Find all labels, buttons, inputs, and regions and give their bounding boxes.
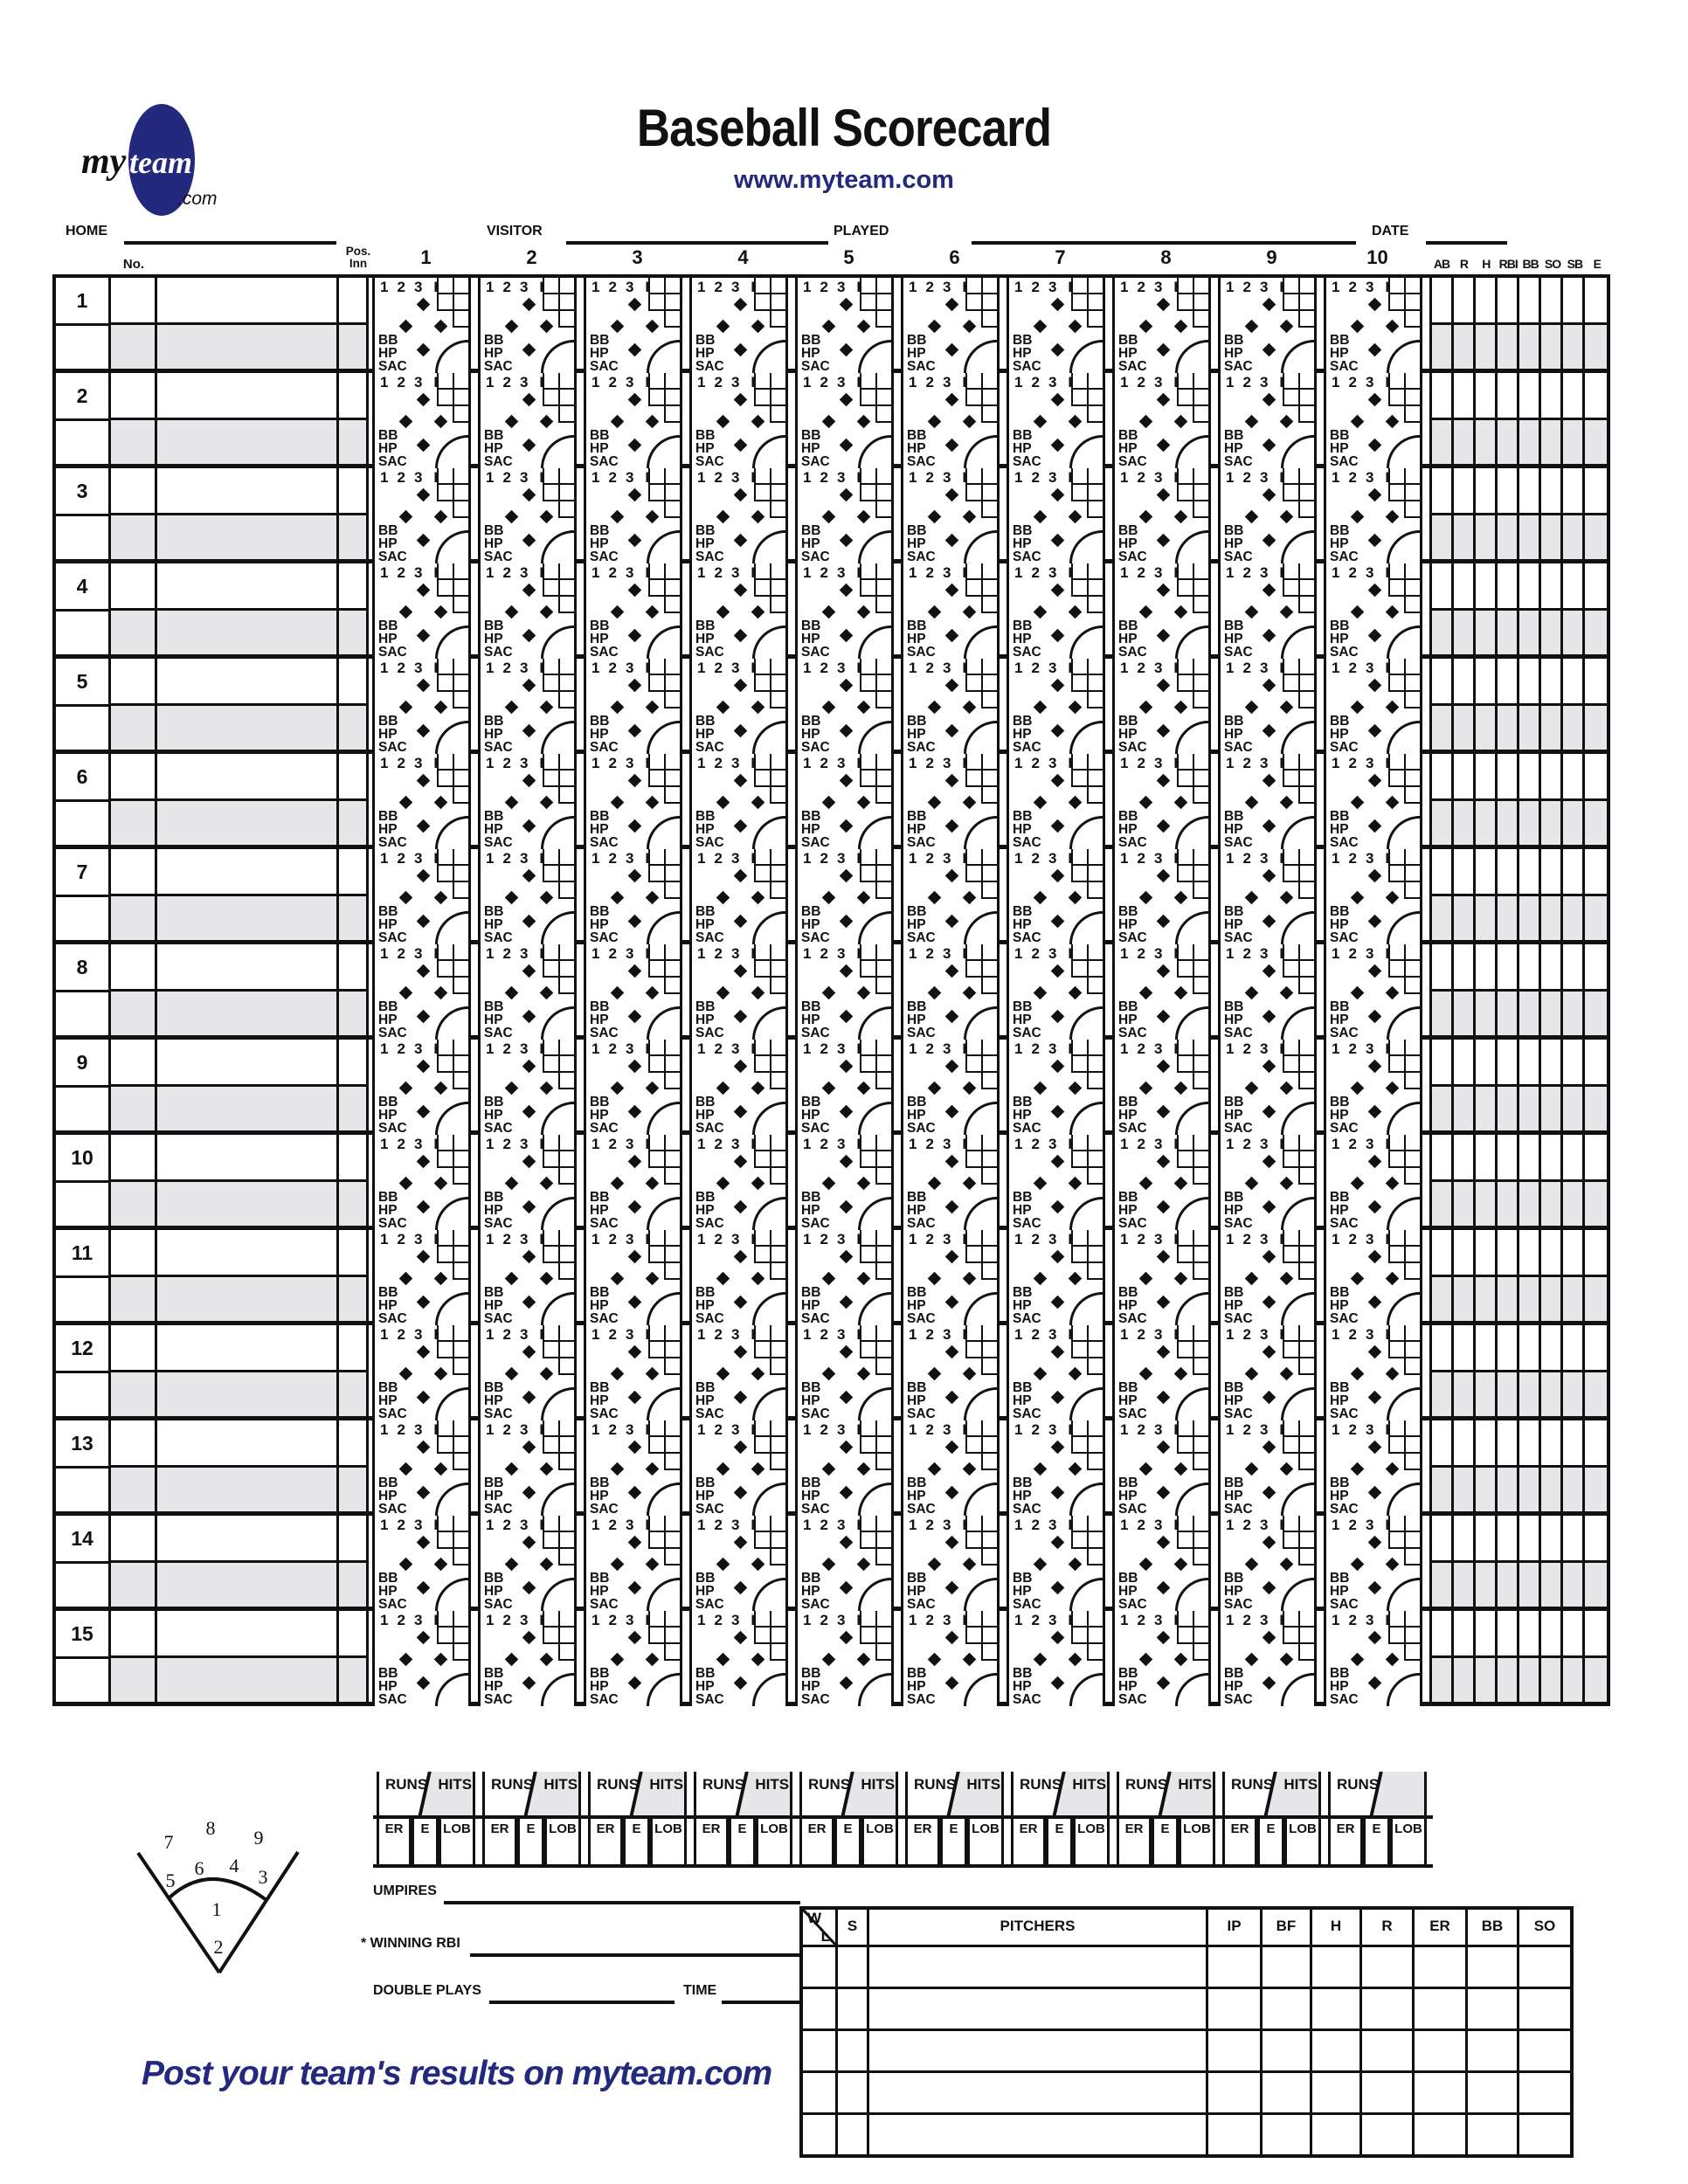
pitch-box[interactable]: [664, 1420, 680, 1437]
pitch-box[interactable]: [981, 692, 997, 708]
stat-cell-bb-sub[interactable]: [1519, 611, 1539, 654]
e-cell[interactable]: E: [729, 1819, 756, 1864]
inning-cell[interactable]: 123HRBBHPSAC: [1112, 1420, 1211, 1516]
pitch-box[interactable]: [1071, 1151, 1087, 1168]
pitch-box[interactable]: [1193, 1628, 1208, 1644]
player-number-cell-sub[interactable]: [111, 420, 155, 464]
stat-cell-rbi[interactable]: [1498, 278, 1517, 325]
pitch-box[interactable]: [1177, 866, 1193, 882]
pitch-box[interactable]: [1177, 1056, 1193, 1073]
pitch-box[interactable]: [754, 294, 770, 311]
pitch-box[interactable]: [1283, 294, 1298, 311]
stat-cell-ab[interactable]: [1432, 1135, 1451, 1182]
pitch-box[interactable]: [664, 1073, 680, 1089]
pitch-box[interactable]: [1298, 1516, 1314, 1532]
player-name-cell-sub[interactable]: [157, 1468, 336, 1511]
stat-cell-so-sub[interactable]: [1541, 706, 1560, 750]
stat-cell-rbi-sub[interactable]: [1498, 1372, 1517, 1416]
order-sub-cell[interactable]: [56, 421, 108, 464]
pitcher-so-cell[interactable]: [1519, 1989, 1570, 2028]
stat-cell-rbi-sub[interactable]: [1498, 1563, 1517, 1607]
pitch-box[interactable]: [754, 1040, 770, 1056]
stat-cell-h-sub[interactable]: [1476, 1277, 1495, 1321]
stat-cell-e[interactable]: [1585, 1040, 1607, 1087]
pitch-box[interactable]: [1193, 597, 1208, 613]
position-input[interactable]: [339, 849, 366, 896]
position-cell-sub[interactable]: [339, 1468, 366, 1511]
pitcher-bf-cell[interactable]: [1263, 1947, 1312, 1987]
pitch-box[interactable]: [1087, 866, 1103, 882]
pitch-box[interactable]: [875, 278, 891, 294]
pitch-box[interactable]: [648, 373, 664, 390]
stat-cell-sb-sub[interactable]: [1563, 706, 1582, 750]
pitch-box[interactable]: [1298, 1135, 1314, 1151]
pitch-box[interactable]: [770, 580, 785, 597]
order-sub-cell[interactable]: [56, 1564, 108, 1607]
pitch-box[interactable]: [664, 501, 680, 518]
inning-cell[interactable]: 123HRBBHPSAC: [584, 1420, 682, 1516]
stat-cell-so[interactable]: [1541, 1230, 1560, 1277]
pitch-box[interactable]: [965, 754, 981, 771]
er-cell[interactable]: ER: [588, 1819, 623, 1864]
pitch-box[interactable]: [875, 771, 891, 787]
inning-cell[interactable]: 123HRBBHPSAC: [901, 1325, 1000, 1420]
pitch-box[interactable]: [558, 1454, 574, 1470]
e-cell[interactable]: E: [1363, 1819, 1390, 1864]
pitch-box[interactable]: [1087, 1420, 1103, 1437]
stat-cell-sb-sub[interactable]: [1563, 515, 1582, 559]
stat-cell-h[interactable]: [1476, 754, 1495, 801]
pitch-box[interactable]: [754, 1151, 770, 1168]
pitch-box[interactable]: [453, 1263, 468, 1280]
stat-cell-ab-sub[interactable]: [1432, 1182, 1451, 1226]
pitch-box[interactable]: [437, 1230, 453, 1247]
stat-cell-bb-sub[interactable]: [1519, 325, 1539, 369]
pitch-box[interactable]: [1298, 787, 1314, 804]
position-input[interactable]: [339, 944, 366, 992]
pitch-box[interactable]: [965, 390, 981, 406]
pitcher-s-cell[interactable]: [838, 1989, 869, 2028]
stat-cell-bb-sub[interactable]: [1519, 801, 1539, 845]
pitch-box[interactable]: [558, 1611, 574, 1628]
pitch-box[interactable]: [1388, 1532, 1404, 1549]
pitch-box[interactable]: [437, 1437, 453, 1454]
pitch-box[interactable]: [1404, 1151, 1420, 1168]
pitch-box[interactable]: [648, 659, 664, 675]
pitch-box[interactable]: [664, 1611, 680, 1628]
pitch-box[interactable]: [1298, 866, 1314, 882]
stat-cell-so-sub[interactable]: [1541, 1372, 1560, 1416]
stat-cell-so-sub[interactable]: [1541, 515, 1560, 559]
stat-cell-so-sub[interactable]: [1541, 896, 1560, 940]
inning-cell[interactable]: 123HRBBHPSAC: [1007, 468, 1105, 563]
pitch-box[interactable]: [981, 1263, 997, 1280]
stat-cell-bb-sub[interactable]: [1519, 1658, 1539, 1702]
pitch-box[interactable]: [981, 1230, 997, 1247]
runs-hits-cell[interactable]: RUNSHITS: [694, 1772, 792, 1815]
pitch-box[interactable]: [981, 501, 997, 518]
stat-cell-r-sub[interactable]: [1454, 992, 1473, 1035]
stat-cell-so-sub[interactable]: [1541, 1658, 1560, 1702]
order-sub-cell[interactable]: [56, 802, 108, 845]
player-number-cell-sub[interactable]: [111, 706, 155, 750]
pitch-box[interactable]: [1193, 1325, 1208, 1342]
pitch-box[interactable]: [1388, 278, 1404, 294]
pitch-box[interactable]: [1404, 1532, 1420, 1549]
stat-cell-e-sub[interactable]: [1585, 801, 1607, 845]
pitch-box[interactable]: [1404, 692, 1420, 708]
pitch-box[interactable]: [1071, 468, 1087, 485]
pitch-box[interactable]: [437, 659, 453, 675]
pitch-box[interactable]: [1298, 1073, 1314, 1089]
stat-cell-rbi-sub[interactable]: [1498, 801, 1517, 845]
player-name-input[interactable]: [157, 849, 336, 896]
pitch-box[interactable]: [875, 1342, 891, 1358]
player-name-cell-sub[interactable]: [157, 515, 336, 559]
pitch-box[interactable]: [860, 1516, 875, 1532]
inning-cell[interactable]: 123HRBBHPSAC: [1112, 1135, 1211, 1230]
inning-cell[interactable]: 123HRBBHPSAC: [1218, 468, 1317, 563]
pitch-box[interactable]: [965, 675, 981, 692]
pitch-box[interactable]: [1071, 944, 1087, 961]
pitch-box[interactable]: [1177, 1151, 1193, 1168]
pitch-box[interactable]: [1388, 1151, 1404, 1168]
pitch-box[interactable]: [1193, 849, 1208, 866]
stat-cell-ab[interactable]: [1432, 1516, 1451, 1563]
stat-cell-h-sub[interactable]: [1476, 1658, 1495, 1702]
pitch-box[interactable]: [543, 849, 558, 866]
stat-cell-h[interactable]: [1476, 944, 1495, 992]
position-input[interactable]: [339, 1325, 366, 1372]
pitch-box[interactable]: [1388, 1056, 1404, 1073]
stat-cell-rbi[interactable]: [1498, 1516, 1517, 1563]
stat-cell-bb-sub[interactable]: [1519, 1372, 1539, 1416]
stat-cell-r[interactable]: [1454, 754, 1473, 801]
pitch-box[interactable]: [437, 961, 453, 978]
runs-hits-cell[interactable]: RUNSHITS: [905, 1772, 1004, 1815]
pitch-box[interactable]: [1177, 485, 1193, 501]
pitch-box[interactable]: [1298, 485, 1314, 501]
player-number-input[interactable]: [111, 659, 155, 706]
pitch-box[interactable]: [1404, 311, 1420, 328]
inning-cell[interactable]: 123HRBBHPSAC: [1218, 1135, 1317, 1230]
inning-cell[interactable]: 123HRBBHPSAC: [901, 278, 1000, 373]
pitch-box[interactable]: [860, 1247, 875, 1263]
pitch-box[interactable]: [664, 1247, 680, 1263]
pitch-box[interactable]: [1298, 754, 1314, 771]
inning-cell[interactable]: 123HRBBHPSAC: [901, 1040, 1000, 1135]
pitch-box[interactable]: [558, 563, 574, 580]
pitch-box[interactable]: [1388, 373, 1404, 390]
inning-cell[interactable]: 123HRBBHPSAC: [1007, 849, 1105, 944]
pitch-box[interactable]: [875, 692, 891, 708]
pitch-box[interactable]: [543, 1325, 558, 1342]
stat-cell-ab-sub[interactable]: [1432, 1087, 1451, 1130]
player-name-input[interactable]: [157, 278, 336, 325]
pitch-box[interactable]: [1193, 278, 1208, 294]
pitch-box[interactable]: [770, 390, 785, 406]
pitch-box[interactable]: [1193, 373, 1208, 390]
stat-cell-r[interactable]: [1454, 278, 1473, 325]
pitch-box[interactable]: [754, 1135, 770, 1151]
pitch-box[interactable]: [965, 1040, 981, 1056]
stat-cell-r[interactable]: [1454, 373, 1473, 420]
pitcher-bf-cell[interactable]: [1263, 2031, 1312, 2070]
pitch-box[interactable]: [453, 1549, 468, 1565]
inning-cell[interactable]: 123HRBBHPSAC: [795, 1135, 894, 1230]
pitch-box[interactable]: [754, 1611, 770, 1628]
pitch-box[interactable]: [1298, 1056, 1314, 1073]
pitch-box[interactable]: [1071, 390, 1087, 406]
stat-cell-bb-sub[interactable]: [1519, 896, 1539, 940]
pitcher-er-cell[interactable]: [1415, 2031, 1468, 2070]
pitch-box[interactable]: [543, 771, 558, 787]
er-cell[interactable]: ER: [1328, 1819, 1363, 1864]
pitch-box[interactable]: [1087, 944, 1103, 961]
pitch-box[interactable]: [965, 1151, 981, 1168]
inning-cell[interactable]: 123HRBBHPSAC: [1007, 944, 1105, 1040]
pitch-box[interactable]: [1087, 1644, 1103, 1661]
pitch-box[interactable]: [1087, 1040, 1103, 1056]
pitch-box[interactable]: [1404, 468, 1420, 485]
inning-cell[interactable]: 123HRBBHPSAC: [372, 944, 471, 1040]
pitch-box[interactable]: [543, 1056, 558, 1073]
player-number-input[interactable]: [111, 1325, 155, 1372]
pitch-box[interactable]: [860, 580, 875, 597]
pitch-box[interactable]: [1087, 580, 1103, 597]
player-number-input[interactable]: [111, 944, 155, 992]
pitch-box[interactable]: [981, 866, 997, 882]
pitch-box[interactable]: [1283, 1040, 1298, 1056]
pitcher-name-cell[interactable]: [869, 2031, 1208, 2070]
pitch-box[interactable]: [1193, 754, 1208, 771]
stat-cell-h-sub[interactable]: [1476, 801, 1495, 845]
pitch-box[interactable]: [1193, 1358, 1208, 1375]
pitch-box[interactable]: [965, 1325, 981, 1342]
pitch-box[interactable]: [1177, 390, 1193, 406]
lob-cell[interactable]: LOB: [1284, 1819, 1321, 1864]
inning-cell[interactable]: 123HRBBHPSAC: [584, 373, 682, 468]
pitch-box[interactable]: [875, 1135, 891, 1151]
pitch-box[interactable]: [1177, 1516, 1193, 1532]
pitch-box[interactable]: [1298, 961, 1314, 978]
pitch-box[interactable]: [770, 1151, 785, 1168]
order-sub-cell[interactable]: [56, 1088, 108, 1130]
stat-cell-h-sub[interactable]: [1476, 325, 1495, 369]
order-sub-cell[interactable]: [56, 1469, 108, 1511]
pitch-box[interactable]: [543, 1342, 558, 1358]
stat-cell-sb-sub[interactable]: [1563, 992, 1582, 1035]
stat-cell-so[interactable]: [1541, 1040, 1560, 1087]
pitch-box[interactable]: [965, 294, 981, 311]
player-number-input[interactable]: [111, 849, 155, 896]
pitch-box[interactable]: [875, 311, 891, 328]
pitch-box[interactable]: [875, 1437, 891, 1454]
pitch-box[interactable]: [1298, 882, 1314, 899]
stat-cell-ab-sub[interactable]: [1432, 325, 1451, 369]
player-name-cell-sub[interactable]: [157, 420, 336, 464]
pitch-box[interactable]: [1177, 1628, 1193, 1644]
stat-cell-r[interactable]: [1454, 944, 1473, 992]
pitch-box[interactable]: [453, 1342, 468, 1358]
pitch-box[interactable]: [1283, 278, 1298, 294]
inning-cell[interactable]: 123HRBBHPSAC: [478, 1611, 577, 1706]
pitch-box[interactable]: [1298, 580, 1314, 597]
pitch-box[interactable]: [1298, 849, 1314, 866]
pitch-box[interactable]: [1177, 1230, 1193, 1247]
pitch-box[interactable]: [770, 1516, 785, 1532]
pitcher-name-cell[interactable]: [869, 1989, 1208, 2028]
pitch-box[interactable]: [965, 1056, 981, 1073]
stat-cell-bb-sub[interactable]: [1519, 1087, 1539, 1130]
inning-cell[interactable]: 123HRBBHPSAC: [372, 1230, 471, 1325]
inning-cell[interactable]: 123HRBBHPSAC: [584, 1135, 682, 1230]
pitch-box[interactable]: [543, 1151, 558, 1168]
pitch-box[interactable]: [664, 882, 680, 899]
pitch-box[interactable]: [543, 294, 558, 311]
pitch-box[interactable]: [875, 849, 891, 866]
stat-cell-e[interactable]: [1585, 1420, 1607, 1468]
pitch-box[interactable]: [1404, 978, 1420, 994]
pitch-box[interactable]: [1388, 659, 1404, 675]
pitch-box[interactable]: [1087, 597, 1103, 613]
pitch-box[interactable]: [1087, 1056, 1103, 1073]
stat-cell-so[interactable]: [1541, 373, 1560, 420]
pitch-box[interactable]: [1298, 1151, 1314, 1168]
pitch-box[interactable]: [1283, 1516, 1298, 1532]
stat-cell-rbi[interactable]: [1498, 849, 1517, 896]
pitch-box[interactable]: [981, 1420, 997, 1437]
pitch-box[interactable]: [1193, 675, 1208, 692]
pitch-box[interactable]: [437, 1151, 453, 1168]
inning-cell[interactable]: 123HRBBHPSAC: [478, 754, 577, 849]
pitch-box[interactable]: [1298, 675, 1314, 692]
pitch-box[interactable]: [875, 1644, 891, 1661]
pitch-box[interactable]: [860, 659, 875, 675]
pitch-box[interactable]: [1404, 1420, 1420, 1437]
pitch-box[interactable]: [965, 1420, 981, 1437]
pitch-box[interactable]: [1193, 1230, 1208, 1247]
inning-cell[interactable]: 123HRBBHPSAC: [1007, 1325, 1105, 1420]
winning-rbi-field-line[interactable]: [470, 1953, 800, 1957]
pitch-box[interactable]: [875, 944, 891, 961]
pitch-box[interactable]: [1298, 771, 1314, 787]
pitch-box[interactable]: [1404, 563, 1420, 580]
stat-cell-r-sub[interactable]: [1454, 1372, 1473, 1416]
position-input[interactable]: [339, 468, 366, 515]
pitch-box[interactable]: [754, 944, 770, 961]
pitch-box[interactable]: [437, 1342, 453, 1358]
pitch-box[interactable]: [437, 1628, 453, 1644]
pitch-box[interactable]: [558, 580, 574, 597]
stat-cell-sb-sub[interactable]: [1563, 1563, 1582, 1607]
pitch-box[interactable]: [1283, 1151, 1298, 1168]
pitch-box[interactable]: [1193, 1437, 1208, 1454]
inning-cell[interactable]: 123HRBBHPSAC: [1112, 468, 1211, 563]
pitch-box[interactable]: [770, 1263, 785, 1280]
inning-cell[interactable]: 123HRBBHPSAC: [1112, 659, 1211, 754]
pitch-box[interactable]: [664, 961, 680, 978]
stat-cell-rbi[interactable]: [1498, 373, 1517, 420]
pitch-box[interactable]: [558, 1230, 574, 1247]
pitch-box[interactable]: [543, 563, 558, 580]
pitch-box[interactable]: [1193, 294, 1208, 311]
inning-cell[interactable]: 123HRBBHPSAC: [372, 849, 471, 944]
pitch-box[interactable]: [1087, 771, 1103, 787]
pitch-box[interactable]: [1404, 961, 1420, 978]
player-name-input[interactable]: [157, 659, 336, 706]
pitch-box[interactable]: [770, 1532, 785, 1549]
inning-cell[interactable]: 123HRBBHPSAC: [372, 659, 471, 754]
pitch-box[interactable]: [437, 849, 453, 866]
position-cell-sub[interactable]: [339, 1182, 366, 1226]
pitch-box[interactable]: [770, 1628, 785, 1644]
pitch-box[interactable]: [981, 1644, 997, 1661]
lob-cell[interactable]: LOB: [967, 1819, 1004, 1864]
inning-cell[interactable]: 123HRBBHPSAC: [372, 754, 471, 849]
pitch-box[interactable]: [648, 1516, 664, 1532]
pitch-box[interactable]: [965, 1230, 981, 1247]
inning-cell[interactable]: 123HRBBHPSAC: [372, 1611, 471, 1706]
stat-cell-rbi-sub[interactable]: [1498, 1182, 1517, 1226]
stat-cell-so-sub[interactable]: [1541, 1468, 1560, 1511]
stat-cell-e[interactable]: [1585, 754, 1607, 801]
pitch-box[interactable]: [1193, 406, 1208, 423]
pitch-box[interactable]: [770, 978, 785, 994]
pitch-box[interactable]: [981, 1247, 997, 1263]
pitch-box[interactable]: [437, 1325, 453, 1342]
inning-cell[interactable]: 123HRBBHPSAC: [689, 1611, 788, 1706]
inning-cell[interactable]: 123HRBBHPSAC: [478, 1325, 577, 1420]
pitch-box[interactable]: [558, 1358, 574, 1375]
er-cell[interactable]: ER: [905, 1819, 940, 1864]
lob-cell[interactable]: LOB: [1390, 1819, 1427, 1864]
pitch-box[interactable]: [558, 771, 574, 787]
pitch-box[interactable]: [558, 294, 574, 311]
pitch-box[interactable]: [860, 754, 875, 771]
stat-cell-ab[interactable]: [1432, 373, 1451, 420]
stat-cell-ab[interactable]: [1432, 849, 1451, 896]
pitch-box[interactable]: [754, 580, 770, 597]
pitch-box[interactable]: [770, 1611, 785, 1628]
stat-cell-h[interactable]: [1476, 1420, 1495, 1468]
pitcher-bb-cell[interactable]: [1468, 1989, 1519, 2028]
stat-cell-sb-sub[interactable]: [1563, 325, 1582, 369]
pitch-box[interactable]: [1388, 849, 1404, 866]
stat-cell-rbi-sub[interactable]: [1498, 1468, 1517, 1511]
pitch-box[interactable]: [1071, 961, 1087, 978]
stat-cell-rbi-sub[interactable]: [1498, 992, 1517, 1035]
stat-cell-h[interactable]: [1476, 1040, 1495, 1087]
pitch-box[interactable]: [981, 1040, 997, 1056]
pitch-box[interactable]: [648, 1420, 664, 1437]
pitch-box[interactable]: [770, 692, 785, 708]
pitch-box[interactable]: [1298, 1420, 1314, 1437]
pitch-box[interactable]: [1388, 771, 1404, 787]
stat-cell-e-sub[interactable]: [1585, 1468, 1607, 1511]
inning-cell[interactable]: 123HRBBHPSAC: [372, 1040, 471, 1135]
inning-cell[interactable]: 123HRBBHPSAC: [795, 278, 894, 373]
pitch-box[interactable]: [453, 1073, 468, 1089]
pitch-box[interactable]: [437, 1040, 453, 1056]
stat-cell-e[interactable]: [1585, 563, 1607, 611]
inning-cell[interactable]: 123HRBBHPSAC: [1112, 944, 1211, 1040]
pitch-box[interactable]: [754, 1628, 770, 1644]
pitch-box[interactable]: [1177, 1532, 1193, 1549]
inning-cell[interactable]: 123HRBBHPSAC: [795, 468, 894, 563]
pitcher-h-cell[interactable]: [1312, 1947, 1362, 1987]
pitch-box[interactable]: [1193, 659, 1208, 675]
